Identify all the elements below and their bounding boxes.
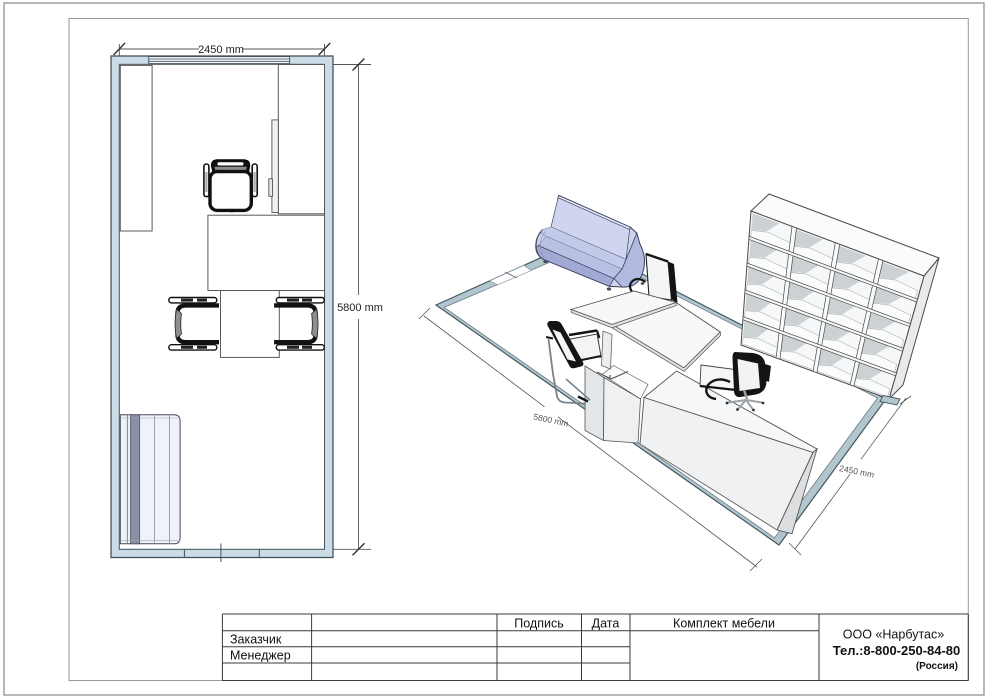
svg-text:5800 mm: 5800 mm [337, 302, 383, 314]
svg-text:Комплект мебели: Комплект мебели [673, 617, 775, 631]
svg-text:(Россия): (Россия) [916, 661, 958, 672]
svg-text:Подпись: Подпись [514, 617, 563, 631]
svg-text:Заказчик: Заказчик [230, 633, 282, 647]
svg-text:2450 mm: 2450 mm [198, 44, 244, 56]
svg-text:Тел.:8-800-250-84-80: Тел.:8-800-250-84-80 [833, 643, 961, 658]
svg-text:Дата: Дата [592, 617, 620, 631]
svg-text:Менеджер: Менеджер [230, 649, 291, 663]
svg-text:ООО «Нарбутас»: ООО «Нарбутас» [843, 628, 944, 642]
